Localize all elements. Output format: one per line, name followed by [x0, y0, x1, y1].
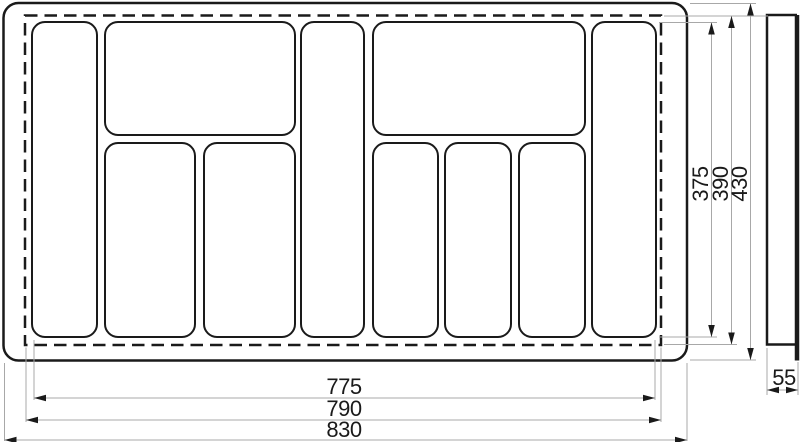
- compartment-lower-right-3: [519, 143, 585, 337]
- compartment-left-tall: [32, 22, 97, 337]
- dimension-label-55: 55: [772, 365, 796, 390]
- compartment-lower-left-2: [204, 143, 295, 337]
- dimension-label-430: 430: [727, 166, 752, 201]
- side-view-profile: [767, 15, 798, 345]
- drawing-svg: 375 390 430 775 790 830 55: [0, 0, 800, 442]
- compartment-center-tall: [301, 22, 364, 337]
- compartment-lower-right-1: [373, 143, 438, 337]
- dimension-label-830: 830: [326, 417, 361, 442]
- compartment-right-tall: [592, 22, 656, 337]
- technical-drawing-canvas: 375 390 430 775 790 830 55: [0, 0, 800, 442]
- compartment-lower-left-1: [105, 143, 195, 337]
- compartment-top-left-large: [105, 22, 295, 135]
- compartment-lower-right-2: [445, 143, 511, 337]
- compartment-top-right-large: [373, 22, 585, 135]
